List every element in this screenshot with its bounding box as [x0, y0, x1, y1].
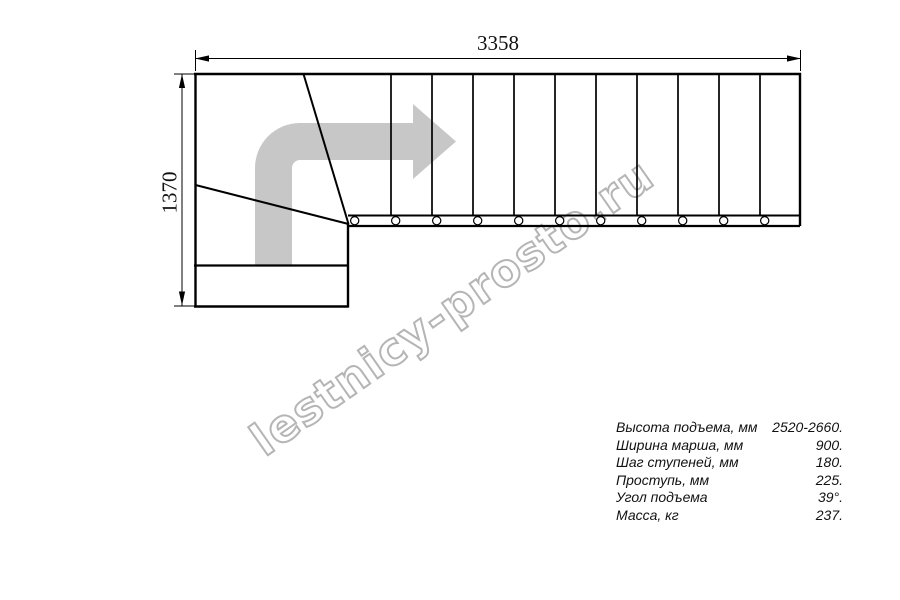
spec-label: Проступь, мм: [616, 472, 709, 490]
spec-value: 39°.: [818, 489, 843, 507]
spec-value: 2520-2660.: [772, 419, 843, 437]
baluster-icon: [515, 217, 523, 225]
baluster-row: [351, 217, 769, 225]
baluster-icon: [351, 217, 359, 225]
spec-label: Ширина марша, мм: [616, 437, 743, 455]
spec-row: Масса, кг 237.: [616, 507, 843, 525]
spec-row: Ширина марша, мм 900.: [616, 437, 843, 455]
baluster-icon: [761, 217, 769, 225]
baluster-icon: [474, 217, 482, 225]
dimension-height-label: 1370: [158, 172, 182, 214]
arrowhead-left-icon: [195, 55, 209, 61]
stair-plan-canvas: lestnicy-prosto.ru: [0, 0, 900, 600]
arrowhead-up-icon: [179, 74, 185, 88]
spec-value: 225.: [816, 472, 843, 490]
spec-value: 900.: [816, 437, 843, 455]
spec-row: Проступь, мм 225.: [616, 472, 843, 490]
arrowhead-down-icon: [179, 292, 185, 306]
spec-row: Высота подъема, мм 2520-2660.: [616, 419, 843, 437]
baluster-icon: [433, 217, 441, 225]
dimension-width: 3358: [195, 31, 801, 71]
baluster-icon: [679, 217, 687, 225]
direction-arrow-icon: [255, 104, 456, 265]
spec-label: Высота подъема, мм: [616, 419, 758, 437]
spec-label: Угол подъема: [616, 489, 708, 507]
spec-label: Масса, кг: [616, 507, 679, 525]
spec-row: Шаг ступеней, мм 180.: [616, 454, 843, 472]
spec-value: 237.: [816, 507, 843, 525]
spec-row: Угол подъема 39°.: [616, 489, 843, 507]
arrowhead-right-icon: [787, 55, 801, 61]
baluster-icon: [556, 217, 564, 225]
baluster-icon: [638, 217, 646, 225]
baluster-icon: [392, 217, 400, 225]
spec-label: Шаг ступеней, мм: [616, 454, 739, 472]
dimension-height: 1370: [158, 74, 196, 306]
dimension-width-label: 3358: [477, 31, 519, 55]
baluster-icon: [597, 217, 605, 225]
spec-value: 180.: [816, 454, 843, 472]
specs-table: Высота подъема, мм 2520-2660. Ширина мар…: [616, 419, 843, 524]
baluster-icon: [720, 217, 728, 225]
